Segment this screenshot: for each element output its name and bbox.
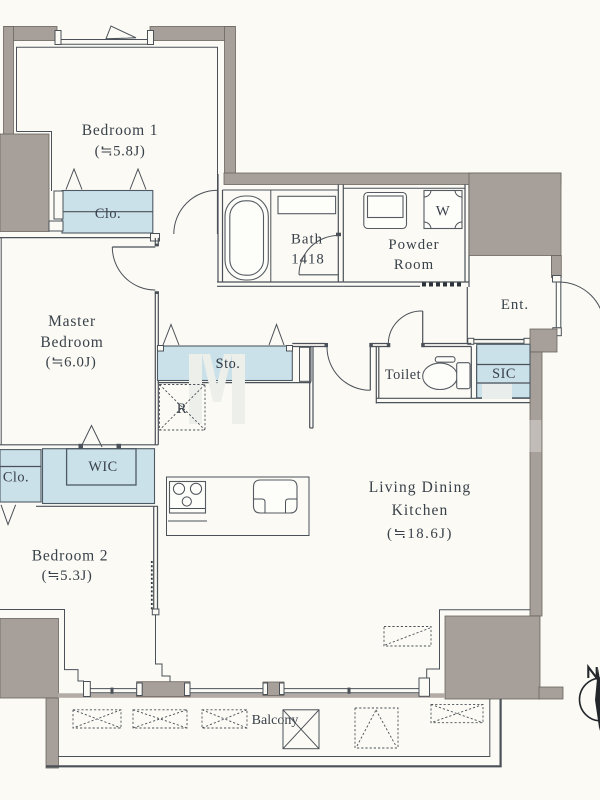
svg-text:(≒6.0J): (≒6.0J) (46, 355, 97, 371)
svg-text:Living Dining: Living Dining (369, 479, 472, 496)
svg-text:Kitchen: Kitchen (392, 502, 449, 519)
svg-text:Ent.: Ent. (501, 297, 529, 313)
svg-text:Clo.: Clo. (3, 470, 29, 486)
svg-text:Master: Master (48, 313, 96, 330)
svg-text:Powder: Powder (388, 237, 439, 253)
svg-text:Bedroom: Bedroom (40, 334, 103, 351)
svg-text:1418: 1418 (291, 252, 325, 268)
svg-text:Sto.: Sto. (216, 356, 241, 372)
svg-text:R: R (177, 401, 187, 417)
svg-text:Room: Room (394, 257, 434, 273)
svg-text:(≒5.3J): (≒5.3J) (42, 568, 93, 584)
svg-text:Bedroom 1: Bedroom 1 (82, 122, 159, 139)
svg-text:Bedroom 2: Bedroom 2 (32, 548, 109, 565)
svg-text:WIC: WIC (88, 459, 117, 475)
svg-text:Clo.: Clo. (95, 206, 121, 222)
svg-text:Balcony: Balcony (252, 713, 299, 728)
svg-text:W: W (436, 204, 451, 220)
svg-text:(≒18.6J): (≒18.6J) (387, 526, 453, 542)
svg-text:Toilet: Toilet (385, 367, 421, 383)
svg-text:SIC: SIC (492, 366, 516, 382)
svg-text:Bath: Bath (291, 232, 323, 248)
svg-text:(≒5.8J): (≒5.8J) (95, 144, 146, 160)
